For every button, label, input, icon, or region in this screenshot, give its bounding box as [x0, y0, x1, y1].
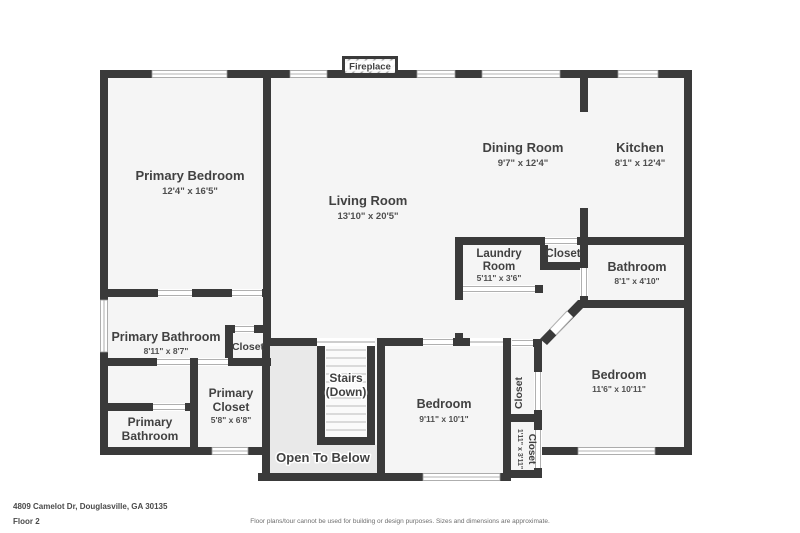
wall-segment: [100, 358, 157, 366]
room-label-primary-closet-line2: Closet: [213, 400, 250, 414]
fireplace-label: Fireplace: [349, 62, 391, 73]
room-label-laundry-line1: Laundry: [476, 248, 522, 260]
room-dims-dining-room: 9'7" x 12'4": [498, 158, 549, 169]
window: [482, 71, 560, 78]
wall-segment: [263, 70, 271, 346]
wall-segment: [578, 300, 692, 308]
wall-segment: [455, 333, 463, 338]
room-label-dining-room: Dining Room: [483, 140, 564, 155]
wall-segment: [560, 70, 618, 78]
wall-segment: [100, 70, 108, 300]
stairs-opening: [317, 338, 375, 346]
window: [423, 474, 500, 481]
wall-segment: [455, 237, 545, 245]
window: [212, 448, 248, 455]
fireplace: Fireplace: [344, 58, 397, 75]
wall-segment: [367, 346, 375, 437]
room-dims-laundry: 5'11" x 3'6": [477, 273, 522, 283]
wall-segment: [535, 285, 543, 293]
door-opening: [235, 325, 254, 333]
wall-segment: [317, 346, 325, 437]
door-opening: [512, 339, 533, 347]
room-dims-bedroom-2-closet-lower: 1'11" x 3'11": [516, 429, 523, 469]
room-label-laundry-line2: Room: [483, 261, 516, 273]
room-label-primary-closet-line1: Primary: [209, 386, 254, 400]
room-label-laundry-closet: Closet: [545, 248, 580, 260]
wall-segment: [100, 289, 158, 297]
room-dims-bedroom-2: 11'6" x 10'11": [592, 384, 646, 394]
footer-address: 4809 Camelot Dr, Douglasville, GA 30135: [13, 502, 168, 511]
room-label-bedroom-1: Bedroom: [417, 397, 472, 411]
window: [578, 448, 655, 455]
door-opening: [534, 372, 542, 410]
doorway-opening: [470, 338, 503, 346]
wall-segment: [536, 447, 578, 455]
wall-segment: [453, 338, 470, 346]
window: [290, 71, 327, 78]
room-label-bathroom: Bathroom: [607, 260, 666, 274]
room-label-bedroom-2-closet-lower: Closet: [526, 434, 537, 465]
wall-segment: [503, 414, 542, 422]
door-opening: [545, 237, 577, 245]
door-opening: [232, 289, 262, 297]
door-opening: [580, 268, 588, 296]
door-opening: [153, 403, 185, 411]
wall-segment: [192, 289, 232, 297]
wall-segment: [377, 338, 385, 481]
footer-disclaimer: Floor plans/tour cannot be used for buil…: [250, 518, 550, 525]
room-label-bedroom-2: Bedroom: [592, 368, 647, 382]
door-opening: [463, 285, 535, 293]
footer-floor-label: Floor 2: [13, 517, 40, 526]
room-dims-bedroom-1: 9'11" x 10'1": [419, 414, 468, 424]
wall-segment: [577, 237, 692, 245]
wall-segment: [455, 70, 482, 78]
wall-segment: [227, 70, 290, 78]
wall-segment: [580, 208, 588, 237]
room-label-hall-closet: Closet: [232, 341, 265, 353]
floor-plan-drawing: Fireplace Primary Bedroom 12'4" x 16'5" …: [0, 0, 800, 533]
room-label-primary-bedroom: Primary Bedroom: [135, 168, 244, 183]
room-label-primary-bathroom-2-line1: Primary: [128, 415, 173, 429]
wall-segment: [455, 237, 463, 300]
room-label-primary-bathroom-2-line2: Bathroom: [122, 429, 179, 443]
wall-segment: [684, 70, 692, 455]
window: [618, 71, 658, 78]
wall-segment: [534, 468, 542, 478]
wall-segment: [534, 422, 542, 430]
room-dims-primary-bedroom: 12'4" x 16'5": [162, 186, 218, 197]
room-dims-living-room: 13'10" x 20'5": [337, 211, 398, 222]
door-opening: [198, 358, 228, 366]
wall-segment: [100, 403, 153, 411]
wall-segment: [385, 338, 423, 346]
wall-segment: [262, 289, 271, 297]
room-dims-primary-closet: 5'8" x 6'8": [211, 415, 251, 425]
room-label-stairs-line2: (Down): [326, 385, 367, 399]
wall-segment: [190, 403, 198, 455]
wall-segment: [533, 339, 542, 347]
wall-segment: [263, 338, 317, 346]
room-dims-primary-bathroom: 8'11" x 8'7": [144, 346, 189, 356]
room-label-stairs-line1: Stairs: [329, 371, 363, 385]
floor-plan-page: Fireplace Primary Bedroom 12'4" x 16'5" …: [0, 0, 800, 533]
door-opening: [158, 289, 192, 297]
room-label-bedroom-2-closet-upper: Closet: [513, 376, 525, 409]
room-label-open-to-below: Open To Below: [276, 450, 371, 465]
wall-segment: [254, 325, 271, 333]
wall-segment: [655, 447, 692, 455]
window: [101, 300, 108, 352]
wall-segment: [534, 347, 542, 372]
room-label-kitchen: Kitchen: [616, 140, 664, 155]
wall-segment: [225, 325, 235, 333]
wall-segment: [258, 473, 423, 481]
room-label-living-room: Living Room: [329, 193, 408, 208]
room-label-primary-bathroom: Primary Bathroom: [111, 330, 220, 344]
door-opening: [423, 338, 453, 346]
window: [417, 71, 455, 78]
door-opening: [157, 358, 190, 366]
wall-segment: [317, 437, 375, 445]
window: [152, 71, 227, 78]
room-dims-kitchen: 8'1" x 12'4": [615, 158, 666, 169]
wall-segment: [503, 338, 511, 473]
room-dims-bathroom: 8'1" x 4'10": [614, 276, 659, 286]
wall-segment: [580, 237, 588, 268]
wall-segment: [262, 346, 270, 481]
wall-segment: [580, 78, 588, 112]
